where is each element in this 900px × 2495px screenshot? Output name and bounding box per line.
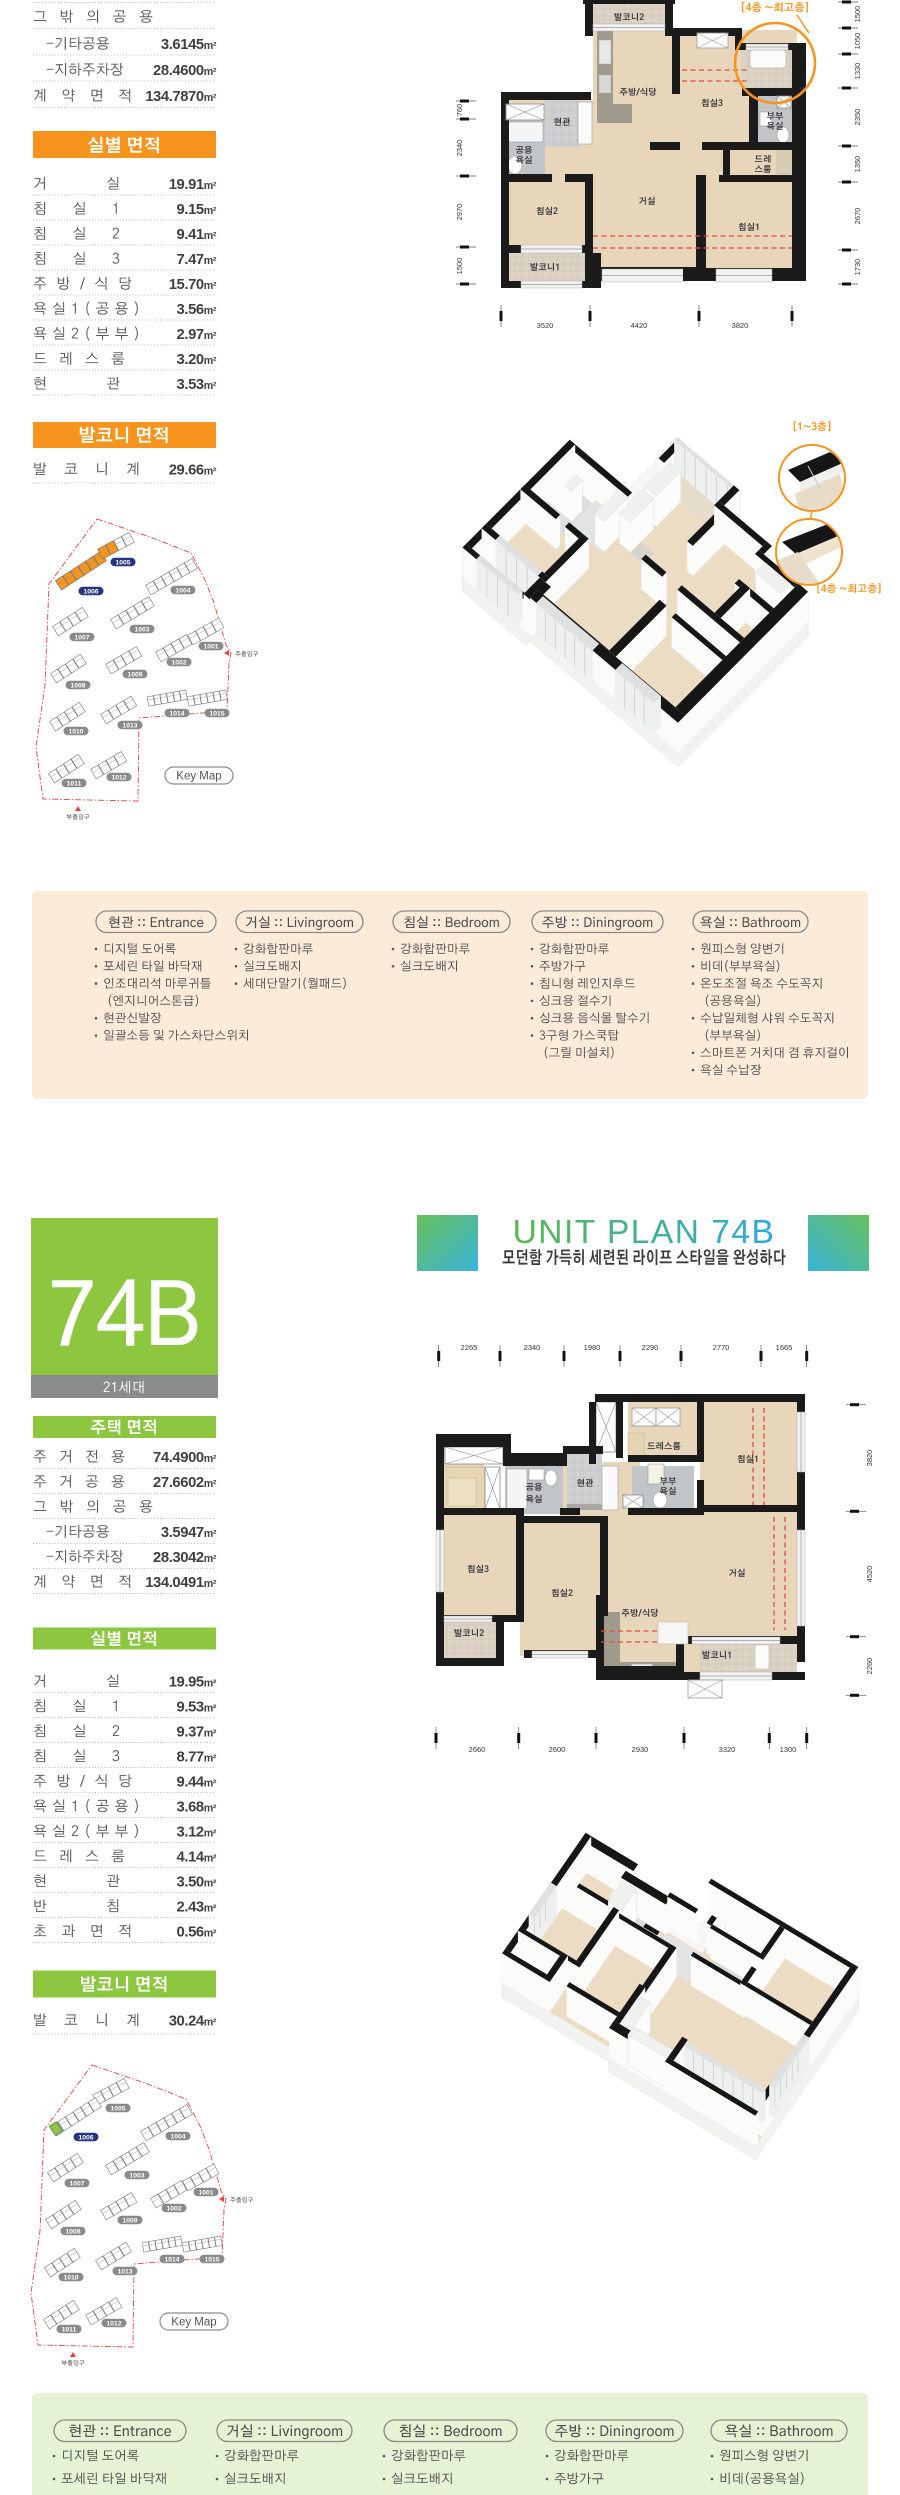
- svg-text:3.5947m²: 3.5947m²: [161, 1525, 217, 1541]
- svg-text:1350: 1350: [853, 156, 862, 173]
- svg-text:2.97m²: 2.97m²: [177, 327, 217, 343]
- svg-text:2770: 2770: [713, 1343, 730, 1352]
- svg-text:19.91m²: 19.91m²: [169, 177, 217, 193]
- svg-text:3.53m²: 3.53m²: [177, 377, 217, 393]
- svg-text:134.0491m²: 134.0491m²: [145, 1575, 217, 1591]
- svg-text:2.43m²: 2.43m²: [177, 1900, 217, 1916]
- svg-text:3320: 3320: [719, 1745, 736, 1754]
- svg-text:1006: 1006: [78, 2134, 93, 2141]
- svg-text:3.56m²: 3.56m²: [177, 302, 217, 318]
- svg-text:2930: 2930: [632, 1745, 649, 1754]
- svg-text:760: 760: [455, 104, 464, 117]
- svg-text:3.68m²: 3.68m²: [177, 1800, 217, 1816]
- svg-text:2340: 2340: [524, 1343, 541, 1352]
- svg-text:2670: 2670: [853, 208, 862, 225]
- svg-text:3.12m²: 3.12m²: [177, 1825, 217, 1841]
- svg-text:UNIT PLAN 74B: UNIT PLAN 74B: [513, 1214, 776, 1251]
- svg-text:1665: 1665: [776, 1343, 793, 1352]
- svg-text:19.95m²: 19.95m²: [169, 1675, 217, 1691]
- svg-text:3.20m²: 3.20m²: [177, 352, 217, 368]
- svg-text:9.41m²: 9.41m²: [177, 227, 217, 243]
- svg-text:1005: 1005: [110, 2105, 125, 2112]
- svg-text:74.4900m²: 74.4900m²: [153, 1450, 217, 1466]
- svg-text:1500: 1500: [455, 258, 464, 275]
- svg-text:3.50m²: 3.50m²: [177, 1875, 217, 1891]
- svg-text:15.70m²: 15.70m²: [169, 277, 217, 293]
- svg-text:1980: 1980: [584, 1343, 601, 1352]
- svg-text:9.53m²: 9.53m²: [177, 1700, 217, 1716]
- svg-text:1006: 1006: [83, 588, 98, 595]
- svg-text:134.7870m²: 134.7870m²: [145, 89, 217, 105]
- svg-text:29.66m²: 29.66m²: [169, 463, 217, 479]
- svg-text:2970: 2970: [455, 204, 464, 221]
- svg-text:0.56m²: 0.56m²: [177, 1925, 217, 1941]
- svg-text:2350: 2350: [853, 109, 862, 126]
- svg-text:2600: 2600: [549, 1745, 566, 1754]
- svg-text:1730: 1730: [853, 259, 862, 276]
- svg-text:2660: 2660: [469, 1745, 486, 1754]
- svg-text:8.77m²: 8.77m²: [177, 1750, 217, 1766]
- svg-text:4520: 4520: [865, 1566, 874, 1583]
- svg-text:2290: 2290: [642, 1343, 659, 1352]
- svg-text:2260: 2260: [865, 1658, 874, 1675]
- svg-text:28.4600m²: 28.4600m²: [153, 63, 217, 79]
- svg-text:30.24m²: 30.24m²: [169, 2014, 217, 2030]
- svg-text:28.3042m²: 28.3042m²: [153, 1550, 217, 1566]
- svg-text:9.15m²: 9.15m²: [177, 202, 217, 218]
- svg-text:9.37m²: 9.37m²: [177, 1725, 217, 1741]
- svg-text:9.44m²: 9.44m²: [177, 1775, 217, 1791]
- svg-text:3.6145m²: 3.6145m²: [161, 37, 217, 53]
- svg-text:1500: 1500: [853, 6, 862, 23]
- svg-text:1330: 1330: [853, 63, 862, 80]
- svg-text:27.6602m²: 27.6602m²: [153, 1475, 217, 1491]
- svg-text:3520: 3520: [537, 321, 554, 330]
- svg-text:2265: 2265: [461, 1343, 478, 1352]
- svg-text:4420: 4420: [631, 321, 648, 330]
- svg-text:2340: 2340: [455, 140, 464, 157]
- svg-text:1300: 1300: [780, 1745, 797, 1754]
- svg-text:3820: 3820: [865, 1450, 874, 1467]
- svg-text:7.47m²: 7.47m²: [177, 252, 217, 268]
- svg-text:1005: 1005: [115, 559, 130, 566]
- svg-text:4.14m²: 4.14m²: [177, 1850, 217, 1866]
- svg-text:1050: 1050: [853, 33, 862, 50]
- svg-text:3820: 3820: [732, 321, 749, 330]
